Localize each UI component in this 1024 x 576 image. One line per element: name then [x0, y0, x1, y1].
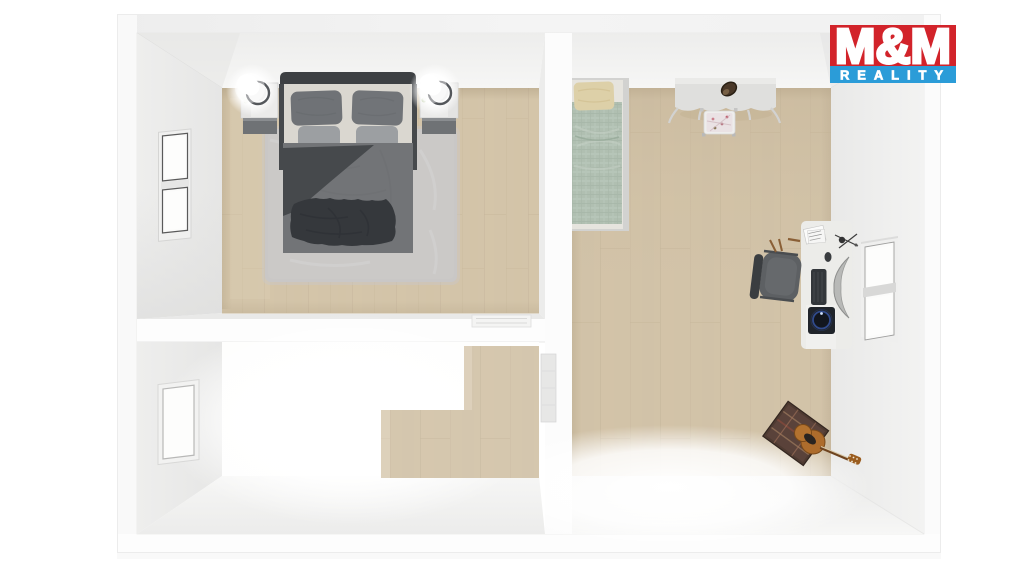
svg-text:M&M: M&M	[835, 20, 951, 74]
